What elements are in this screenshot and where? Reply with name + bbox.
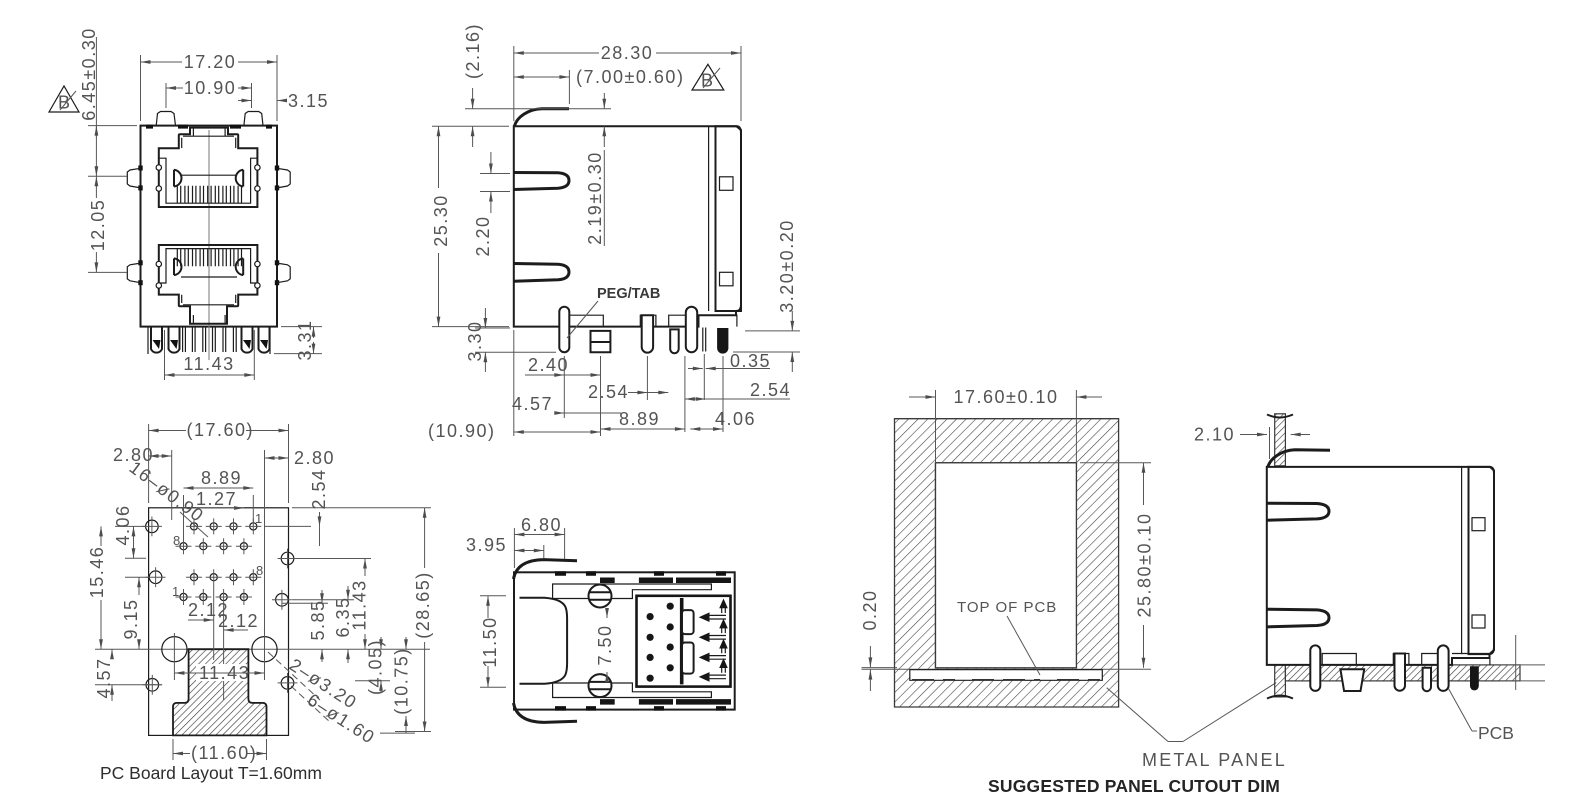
svg-text:8.89: 8.89 — [201, 468, 242, 488]
svg-text:2.54: 2.54 — [588, 382, 629, 402]
svg-text:7.50: 7.50 — [595, 624, 615, 665]
svg-text:(10.75): (10.75) — [392, 647, 412, 715]
svg-text:3.20±0.20: 3.20±0.20 — [777, 219, 797, 312]
svg-text:8.89: 8.89 — [619, 409, 660, 429]
svg-text:2.19±0.30: 2.19±0.30 — [585, 151, 605, 244]
svg-text:(10.90): (10.90) — [428, 421, 496, 441]
svg-text:(4.05): (4.05) — [366, 639, 386, 695]
svg-text:2.54: 2.54 — [750, 380, 791, 400]
svg-text:3.30: 3.30 — [465, 320, 485, 361]
svg-text:10.90: 10.90 — [184, 78, 237, 98]
svg-text:2.12: 2.12 — [218, 611, 259, 631]
svg-text:2.40: 2.40 — [528, 355, 569, 375]
svg-text:PEG/TAB: PEG/TAB — [597, 286, 660, 302]
svg-text:8: 8 — [256, 563, 263, 578]
svg-text:5.85: 5.85 — [308, 599, 328, 640]
svg-text:3.95: 3.95 — [466, 535, 507, 555]
svg-text:12.05: 12.05 — [88, 199, 108, 252]
svg-text:4.06: 4.06 — [113, 504, 133, 545]
svg-text:2.80: 2.80 — [294, 448, 335, 468]
svg-text:SUGGESTED PANEL CUTOUT DIM: SUGGESTED PANEL CUTOUT DIM — [988, 776, 1280, 796]
svg-text:28.30: 28.30 — [601, 43, 654, 63]
svg-text:15.46: 15.46 — [87, 546, 107, 599]
svg-text:(2.16): (2.16) — [463, 23, 483, 79]
svg-text:17.60±0.10: 17.60±0.10 — [954, 387, 1059, 407]
svg-text:8: 8 — [173, 533, 180, 548]
svg-text:METAL PANEL: METAL PANEL — [1142, 750, 1287, 770]
svg-text:17.20: 17.20 — [184, 52, 237, 72]
svg-text:0.20: 0.20 — [860, 589, 880, 630]
svg-text:2.10: 2.10 — [1194, 425, 1235, 445]
svg-text:2.54: 2.54 — [309, 468, 329, 509]
svg-text:0.35: 0.35 — [730, 351, 771, 371]
svg-text:6.45±0.30: 6.45±0.30 — [79, 27, 99, 120]
svg-text:4.57: 4.57 — [512, 394, 553, 414]
svg-text:(7.00±0.60): (7.00±0.60) — [576, 67, 684, 87]
svg-text:(17.60): (17.60) — [187, 420, 255, 440]
svg-text:1: 1 — [172, 584, 179, 599]
svg-text:PCB: PCB — [1478, 723, 1514, 743]
svg-text:11.43: 11.43 — [350, 579, 370, 630]
svg-text:11.43: 11.43 — [183, 354, 234, 374]
svg-text:9.15: 9.15 — [121, 598, 141, 639]
svg-text:1: 1 — [255, 511, 262, 526]
svg-text:TOP OF PCB: TOP OF PCB — [957, 599, 1057, 616]
svg-text:2.20: 2.20 — [473, 215, 493, 256]
svg-text:4.06: 4.06 — [715, 409, 756, 429]
svg-text:11.43: 11.43 — [199, 663, 250, 683]
svg-text:4.57: 4.57 — [94, 657, 114, 698]
svg-text:3.31: 3.31 — [295, 319, 315, 360]
svg-text:3.15: 3.15 — [288, 91, 329, 111]
svg-text:PC Board Layout T=1.60mm: PC Board Layout T=1.60mm — [100, 763, 322, 783]
svg-text:25.30: 25.30 — [431, 194, 451, 247]
svg-text:(28.65): (28.65) — [413, 571, 433, 639]
svg-text:11.50: 11.50 — [480, 616, 500, 667]
svg-text:(11.60): (11.60) — [191, 743, 257, 763]
svg-text:6.80: 6.80 — [521, 515, 562, 535]
svg-text:25.80±0.10: 25.80±0.10 — [1135, 513, 1155, 618]
